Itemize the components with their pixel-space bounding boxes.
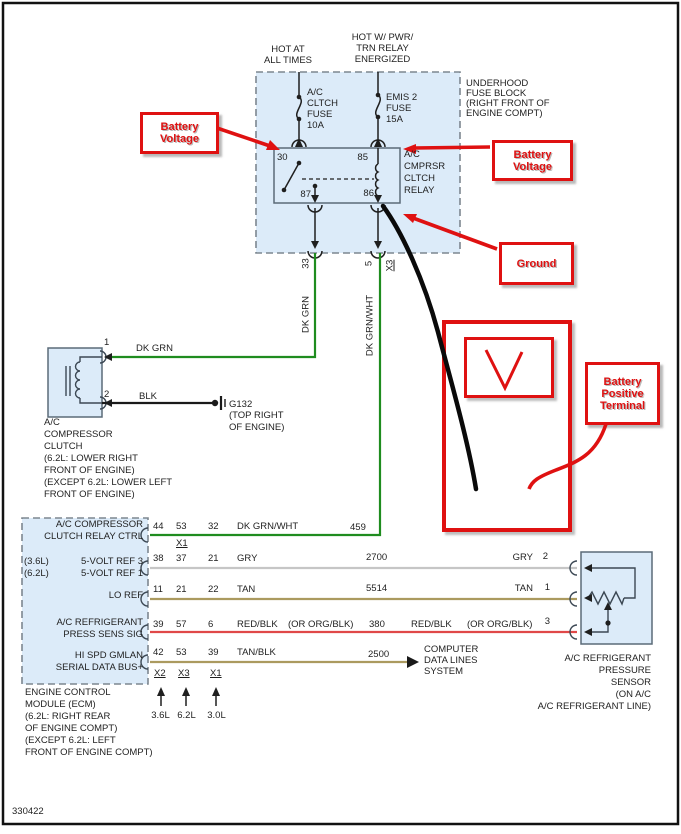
relay-pin-86: 86 (358, 188, 374, 199)
ecm-connector-x1: X1 (210, 668, 228, 679)
wire-name-alt: (OR ORG/BLK) (288, 619, 358, 630)
sensor-pin: 3 (536, 616, 550, 627)
relay-pin-87: 87 (295, 189, 311, 200)
ecm-pin: 44 (153, 521, 171, 532)
ecm-pin: 38 (153, 553, 171, 564)
wire-name: GRY (237, 553, 277, 564)
ground-location-label: (TOP RIGHT OF ENGINE) (229, 410, 309, 434)
ecm-row-name: A/C REFRIGERANT PRESS SENS SIG (30, 617, 143, 641)
ecm-pin: 53 (176, 521, 194, 532)
wire-label-dk-grn-vertical: DK GRN (301, 285, 312, 345)
ground-id-g132: G132 (229, 399, 279, 410)
ecm-row-name: 5-VOLT REF 3 5-VOLT REF 1 (60, 556, 143, 580)
circuit-number: 459 (350, 522, 380, 533)
ecm-pin: 21 (208, 553, 226, 564)
circuit-number: 5514 (366, 583, 400, 594)
supply-label-hot-with-pwr-trn-relay: HOT W/ PWR/ TRN RELAY ENERGIZED (345, 32, 420, 65)
circuit-number: 2700 (366, 552, 400, 563)
ecm-pin: 32 (208, 521, 226, 532)
wire-label-blk: BLK (139, 391, 179, 402)
exit-connector-x3: X3 (385, 246, 396, 286)
ac-clutch-fuse-label: A/C CLTCH FUSE 10A (307, 87, 357, 131)
wire-name: DK GRN/WHT (237, 521, 317, 532)
ecm-row-name: LO REF (30, 590, 143, 601)
ecm-connector-x2: X2 (154, 668, 172, 679)
relay-pin-85: 85 (352, 152, 368, 163)
wire-name: RED/BLK (237, 619, 287, 630)
wire-name-dest-alt: (OR ORG/BLK) (467, 619, 537, 630)
emis2-fuse-label: EMIS 2 FUSE 15A (386, 92, 436, 125)
underhood-fuse-block-label: UNDERHOOD FUSE BLOCK (RIGHT FRONT OF ENG… (466, 79, 576, 119)
compressor-pin-1: 1 (104, 337, 116, 348)
wire-label-dk-grn: DK GRN (136, 343, 186, 354)
diagram-number: 330422 (12, 806, 72, 817)
sensor-pin: 2 (534, 551, 548, 562)
exit-pin-5: 5 (364, 244, 375, 284)
wire-name-dest: TAN (503, 583, 533, 594)
ecm-pin: 39 (153, 619, 171, 630)
ecm-pin: 37 (176, 553, 194, 564)
compressor-clutch-label: A/C COMPRESSOR CLUTCH (6.2L: LOWER RIGHT… (44, 417, 194, 501)
ecm-connector-x3: X3 (178, 668, 196, 679)
compressor-pin-2: 2 (104, 389, 116, 400)
ecm-row-variants: (3.6L) (6.2L) (24, 556, 58, 580)
battery-positive-cable (383, 206, 476, 489)
engine-variant-3-0l: 3.0L (203, 710, 230, 721)
voltage-check-mark (486, 350, 522, 388)
relay-label: A/C CMPRSR CLTCH RELAY (404, 149, 464, 197)
wire-name-dest: RED/BLK (411, 619, 461, 630)
relay-pin-30: 30 (277, 152, 293, 163)
wire-name: TAN/BLK (237, 647, 297, 658)
supply-label-hot-at-all-times: HOT AT ALL TIMES (253, 44, 323, 66)
circuit-number: 380 (369, 619, 399, 630)
ecm-pin: 53 (176, 647, 194, 658)
ecm-pin: 22 (208, 584, 226, 595)
ecm-pin: 39 (208, 647, 226, 658)
ecm-pin: 42 (153, 647, 171, 658)
wire-label-dk-grn-wht-vertical: DK GRN/WHT (365, 286, 376, 366)
computer-data-lines-label: COMPUTER DATA LINES SYSTEM (424, 644, 504, 677)
ecm-pin: 21 (176, 584, 194, 595)
ecm-pin: 11 (153, 584, 171, 595)
sensor-pin: 1 (536, 582, 550, 593)
exit-pin-33: 33 (301, 244, 312, 284)
wire-name: TAN (237, 584, 277, 595)
wire-name-dest: GRY (503, 552, 533, 563)
pressure-sensor-label: A/C REFRIGERANT PRESSURE SENSOR (ON A/C … (511, 653, 651, 713)
ecm-pin: 57 (176, 619, 194, 630)
ecm-row-name: A/C COMPRESSOR CLUTCH RELAY CTRL (30, 519, 143, 543)
wiring-diagram-page: Battery Voltage Battery Voltage Ground B… (0, 0, 681, 834)
ecm-label: ENGINE CONTROL MODULE (ECM) (6.2L: RIGHT… (25, 687, 185, 759)
circuit-number: 2500 (368, 649, 402, 660)
ecm-connector-x1: X1 (176, 538, 194, 549)
ecm-row-name: HI SPD GMLAN SERIAL DATA BUS+ (30, 650, 143, 674)
ecm-pin: 6 (208, 619, 226, 630)
